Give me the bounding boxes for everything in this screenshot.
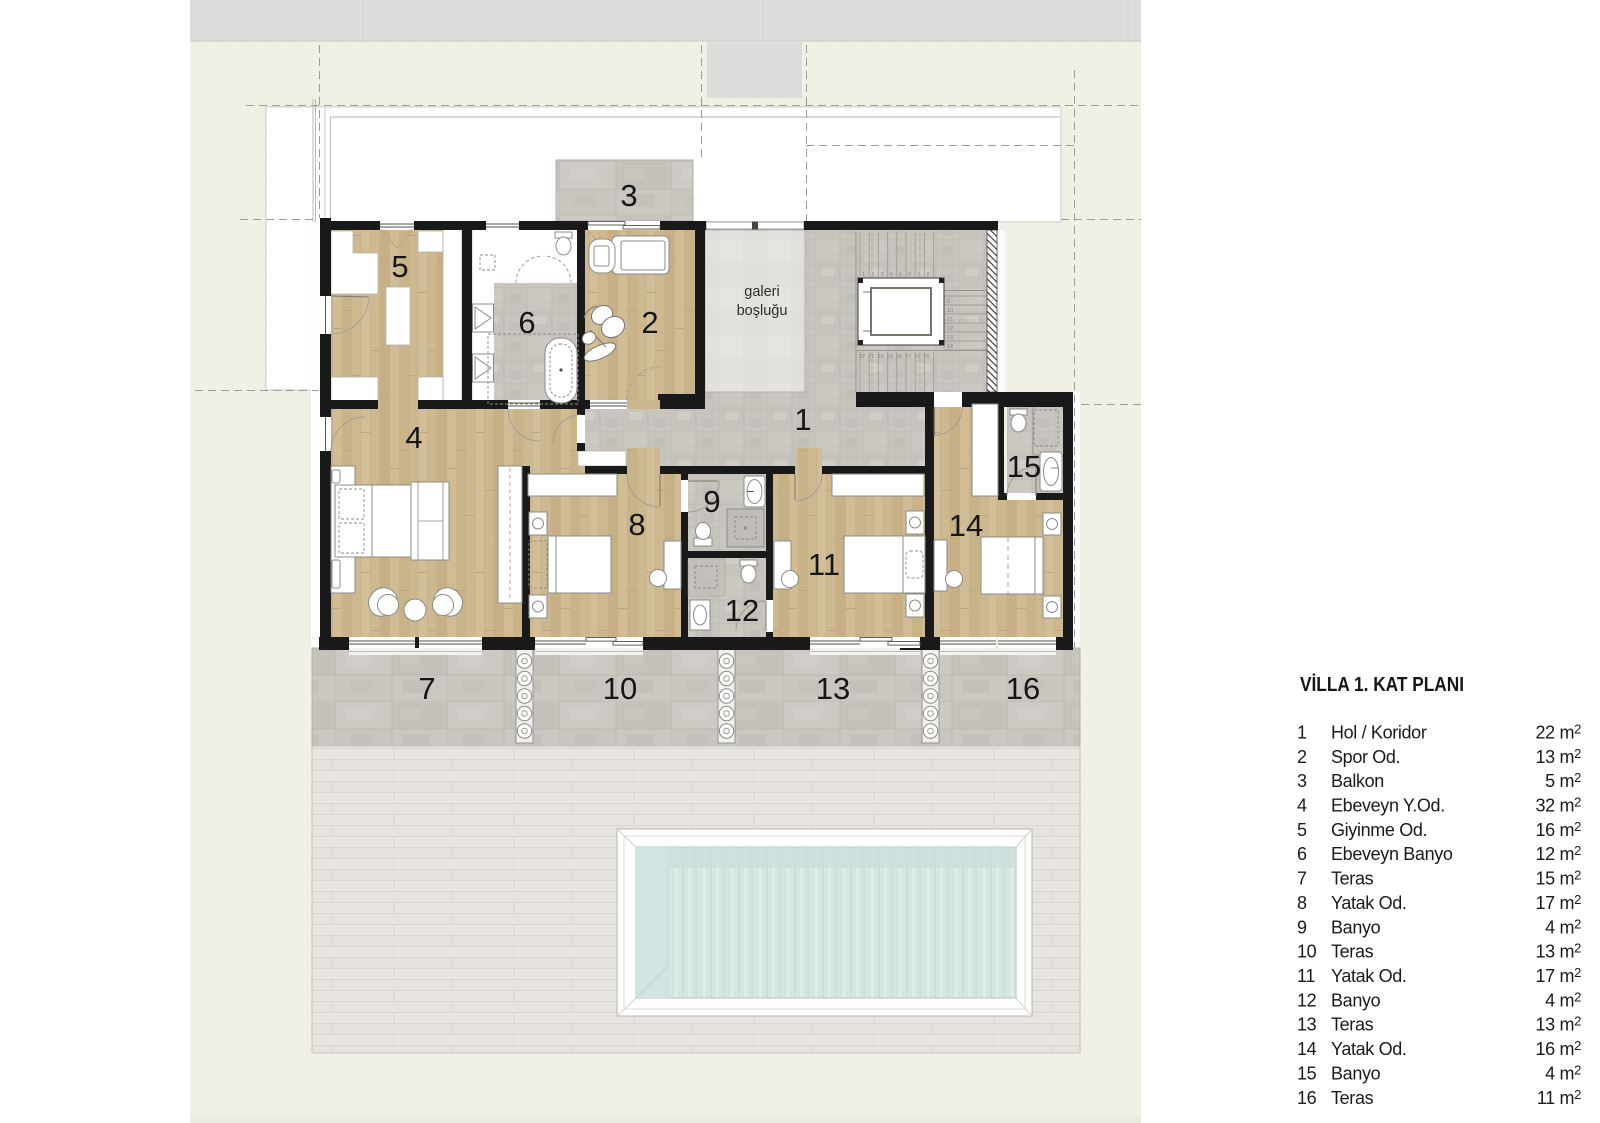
svg-text:17: 17 xyxy=(905,354,911,360)
svg-text:10: 10 xyxy=(1297,942,1317,962)
svg-text:13: 13 xyxy=(947,335,953,341)
svg-text:7: 7 xyxy=(1297,869,1307,889)
svg-text:1: 1 xyxy=(794,402,811,437)
svg-text:Yatak Od.: Yatak Od. xyxy=(1331,966,1407,986)
svg-text:5: 5 xyxy=(391,249,408,284)
svg-text:galeri: galeri xyxy=(744,284,779,300)
svg-text:1: 1 xyxy=(1297,723,1307,743)
svg-text:13: 13 xyxy=(816,671,850,706)
svg-text:18: 18 xyxy=(896,354,902,360)
svg-text:16: 16 xyxy=(1006,671,1040,706)
svg-text:2: 2 xyxy=(1297,747,1307,767)
svg-text:Banyo: Banyo xyxy=(1331,990,1381,1010)
svg-text:15: 15 xyxy=(923,354,929,360)
svg-text:12: 12 xyxy=(1297,990,1317,1010)
svg-text:7: 7 xyxy=(418,671,435,706)
svg-text:16: 16 xyxy=(914,354,920,360)
svg-text:19: 19 xyxy=(887,354,893,360)
svg-text:Teras: Teras xyxy=(1331,942,1374,962)
svg-text:14: 14 xyxy=(1297,1039,1317,1059)
svg-text:14: 14 xyxy=(949,508,983,543)
svg-text:15: 15 xyxy=(1007,449,1041,484)
svg-text:Giyinme Od.: Giyinme Od. xyxy=(1331,820,1427,840)
svg-text:3: 3 xyxy=(1297,771,1307,791)
svg-text:2: 2 xyxy=(641,305,658,340)
svg-text:Balkon: Balkon xyxy=(1331,771,1384,791)
svg-text:Yatak Od.: Yatak Od. xyxy=(1331,893,1407,913)
svg-text:4: 4 xyxy=(890,272,893,278)
svg-text:20: 20 xyxy=(877,354,883,360)
svg-text:4: 4 xyxy=(405,420,422,455)
svg-text:9: 9 xyxy=(947,299,950,305)
svg-text:12: 12 xyxy=(725,593,759,628)
svg-text:3: 3 xyxy=(880,272,883,278)
svg-text:Teras: Teras xyxy=(1331,869,1374,889)
svg-text:Banyo: Banyo xyxy=(1331,1063,1381,1083)
svg-text:22: 22 xyxy=(859,354,865,360)
svg-text:14: 14 xyxy=(947,344,953,350)
svg-text:Hol / Koridor: Hol / Koridor xyxy=(1331,723,1427,743)
svg-text:Ebeveyn Y.Od.: Ebeveyn Y.Od. xyxy=(1331,796,1445,816)
svg-text:Banyo: Banyo xyxy=(1331,917,1381,937)
svg-text:9: 9 xyxy=(703,484,720,519)
svg-text:Spor Od.: Spor Od. xyxy=(1331,747,1400,767)
svg-text:5: 5 xyxy=(1297,820,1307,840)
svg-text:8: 8 xyxy=(1297,893,1307,913)
svg-text:1: 1 xyxy=(862,272,865,278)
svg-text:10: 10 xyxy=(947,308,953,314)
svg-text:16: 16 xyxy=(1297,1088,1317,1108)
svg-text:12: 12 xyxy=(947,326,953,332)
svg-text:21: 21 xyxy=(868,354,874,360)
svg-text:Ebeveyn Banyo: Ebeveyn Banyo xyxy=(1331,844,1453,864)
svg-text:boşluğu: boşluğu xyxy=(737,303,788,319)
svg-text:4: 4 xyxy=(1297,796,1307,816)
svg-text:6: 6 xyxy=(518,305,535,340)
svg-text:9: 9 xyxy=(1297,917,1307,937)
svg-text:6: 6 xyxy=(908,272,911,278)
svg-text:11: 11 xyxy=(808,547,840,582)
svg-text:Yatak Od.: Yatak Od. xyxy=(1331,1039,1407,1059)
svg-text:VİLLA 1. KAT PLANI: VİLLA 1. KAT PLANI xyxy=(1300,673,1464,696)
svg-text:13: 13 xyxy=(1297,1015,1317,1035)
svg-text:Teras: Teras xyxy=(1331,1088,1374,1108)
svg-text:Teras: Teras xyxy=(1331,1015,1374,1035)
svg-text:5: 5 xyxy=(899,272,902,278)
svg-text:6: 6 xyxy=(1297,844,1307,864)
svg-text:8: 8 xyxy=(926,272,929,278)
svg-text:3: 3 xyxy=(620,178,637,213)
svg-text:10: 10 xyxy=(603,671,637,706)
svg-text:8: 8 xyxy=(628,507,645,542)
svg-text:11: 11 xyxy=(1297,966,1315,986)
svg-text:15: 15 xyxy=(1297,1063,1317,1083)
